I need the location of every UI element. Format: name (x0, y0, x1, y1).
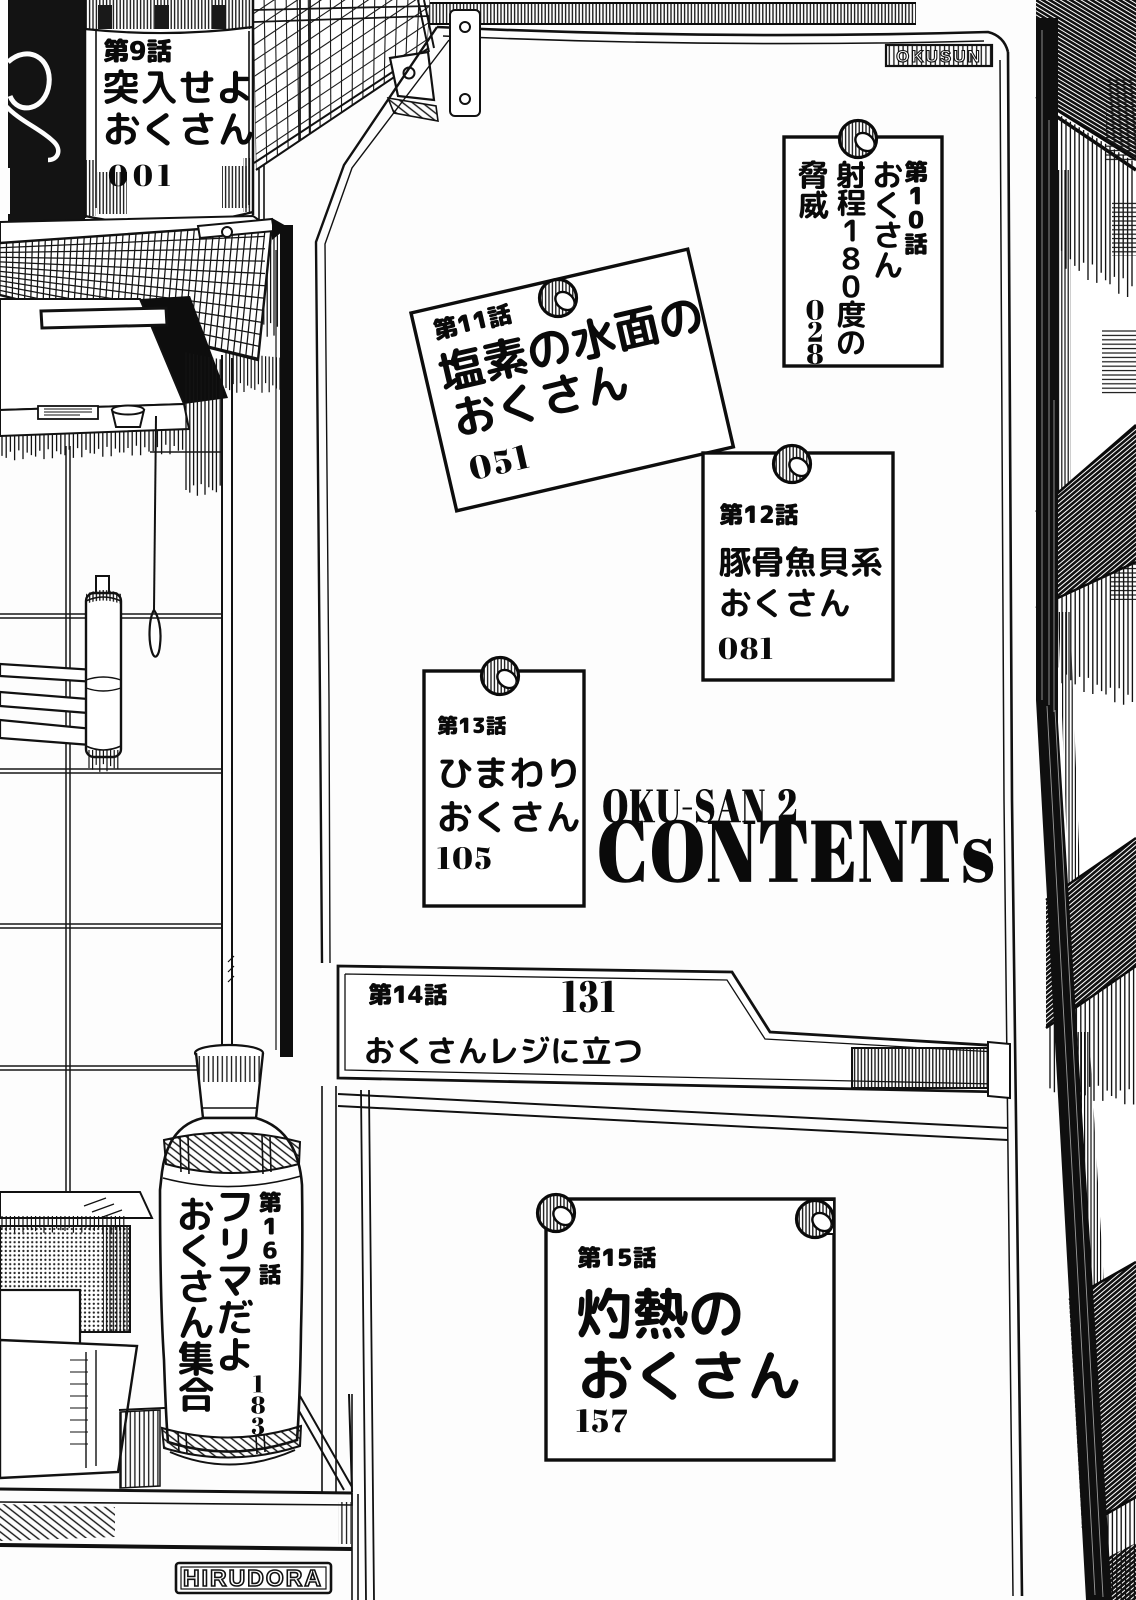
svg-text:OKUSUN: OKUSUN (896, 47, 982, 66)
svg-text:HIRUDORA: HIRUDORA (183, 1565, 323, 1591)
